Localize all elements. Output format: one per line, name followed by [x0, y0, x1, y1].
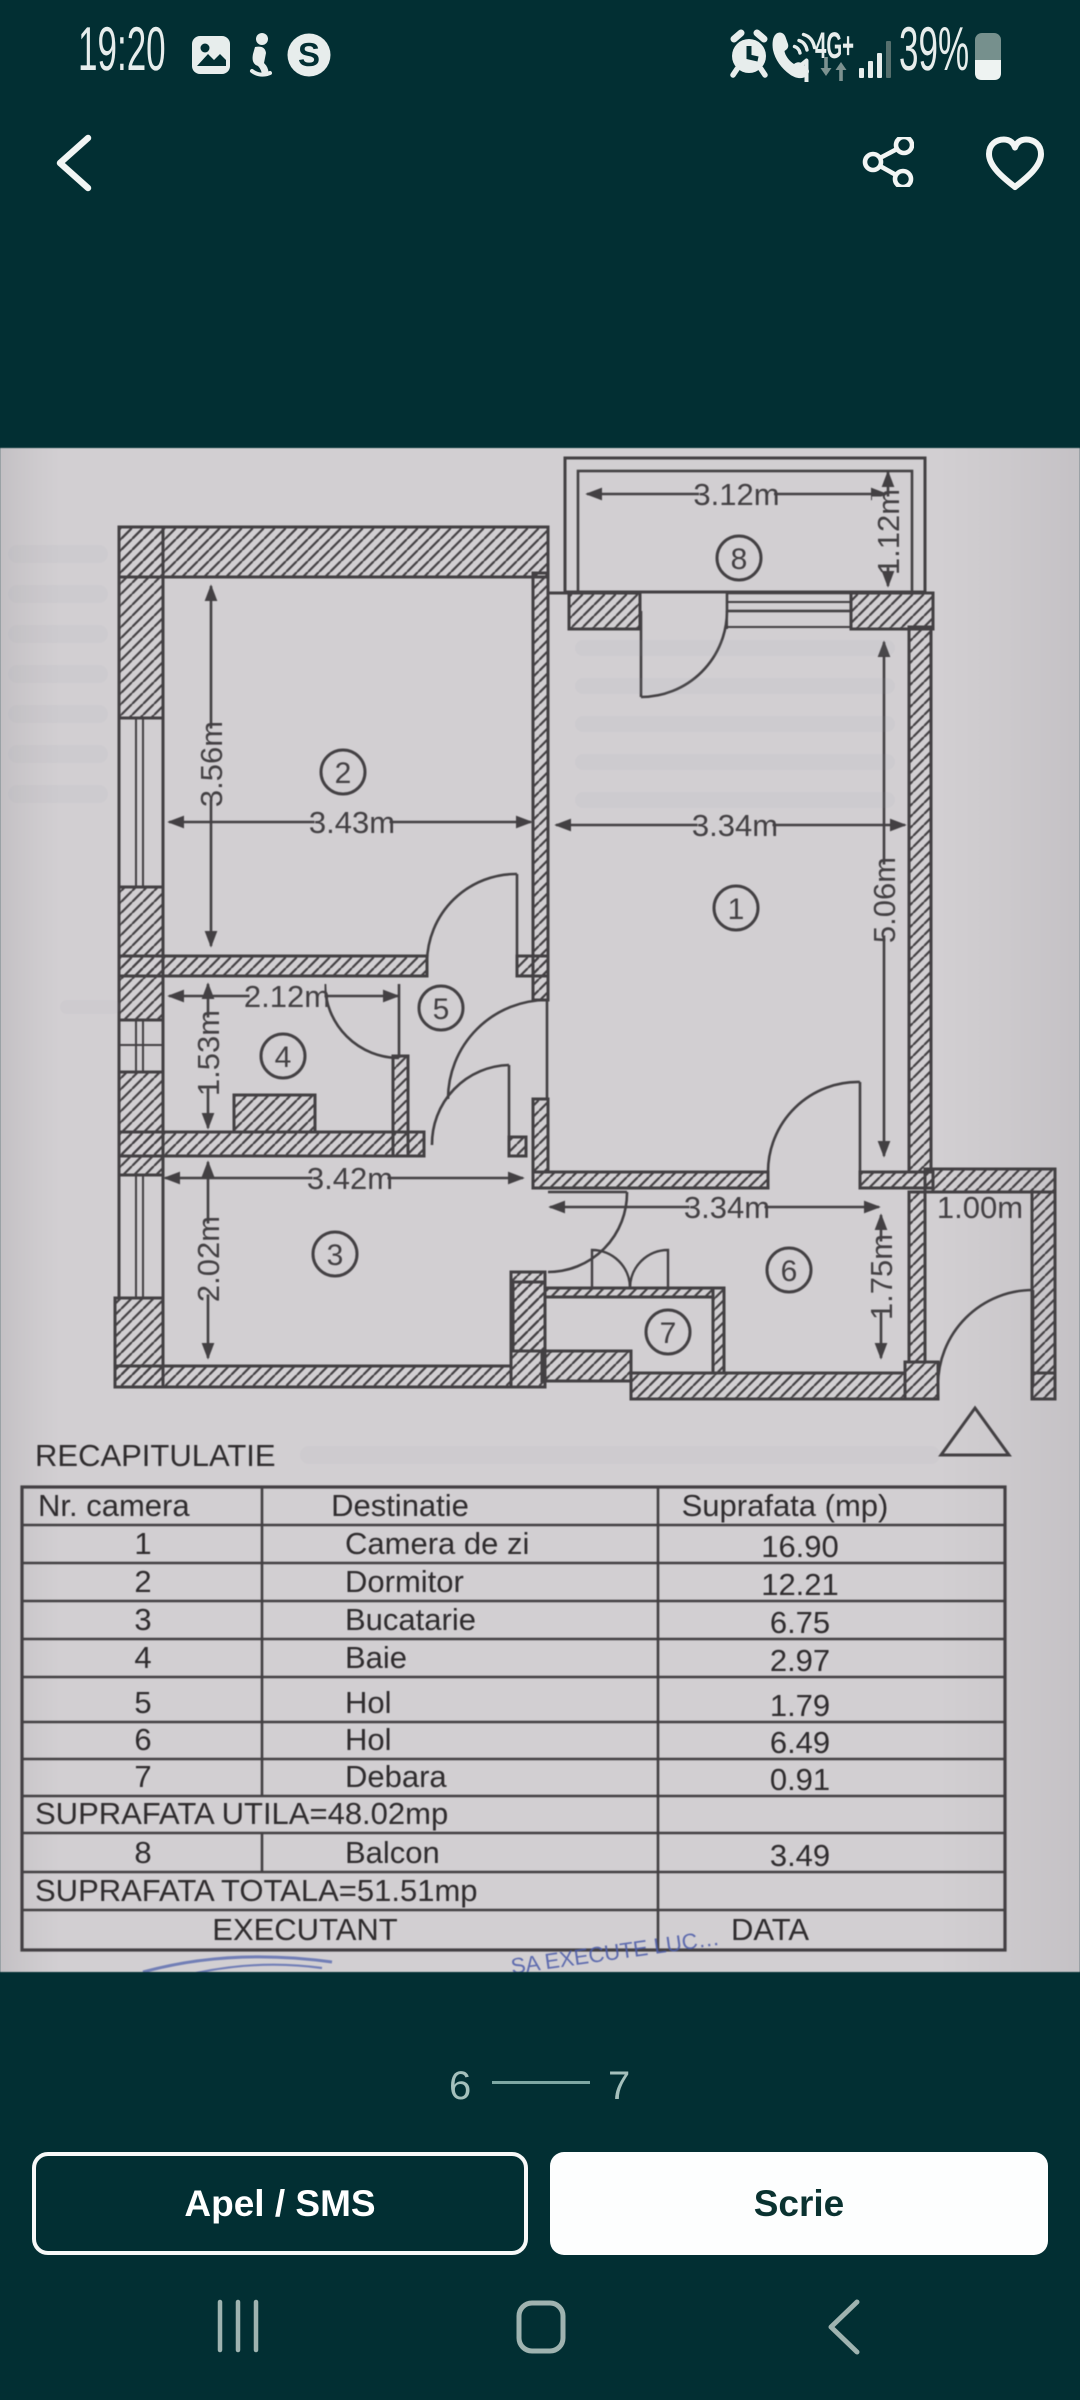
- svg-text:6: 6: [134, 1722, 151, 1757]
- svg-text:2.02m: 2.02m: [191, 1216, 226, 1302]
- svg-text:Suprafata (mp): Suprafata (mp): [682, 1488, 889, 1523]
- svg-text:EXECUTANT: EXECUTANT: [212, 1912, 398, 1947]
- svg-text:2: 2: [335, 757, 352, 790]
- svg-text:SUPRAFATA TOTALA=51.51mp: SUPRAFATA TOTALA=51.51mp: [35, 1873, 478, 1908]
- svg-text:3.12m: 3.12m: [693, 477, 779, 512]
- svg-text:Dormitor: Dormitor: [345, 1564, 464, 1599]
- svg-text:7: 7: [660, 1317, 677, 1350]
- svg-text:39%: 39%: [899, 15, 969, 84]
- svg-text:16.90: 16.90: [761, 1529, 839, 1564]
- svg-text:2.12m: 2.12m: [244, 979, 330, 1014]
- svg-text:Hol: Hol: [345, 1722, 392, 1757]
- svg-text:3.42m: 3.42m: [307, 1161, 393, 1196]
- svg-text:7: 7: [134, 1759, 151, 1794]
- svg-text:Nr. camera: Nr. camera: [38, 1488, 190, 1523]
- svg-text:12.21: 12.21: [761, 1567, 839, 1602]
- svg-text:4: 4: [134, 1640, 151, 1675]
- svg-text:0.91: 0.91: [770, 1762, 830, 1797]
- svg-text:1.75m: 1.75m: [864, 1234, 899, 1320]
- svg-text:3: 3: [327, 1239, 344, 1272]
- svg-text:1: 1: [728, 893, 745, 926]
- svg-text:3.34m: 3.34m: [692, 808, 778, 843]
- svg-text:Camera de zi: Camera de zi: [345, 1526, 529, 1561]
- svg-text:5: 5: [134, 1685, 151, 1720]
- svg-text:6: 6: [781, 1255, 798, 1288]
- svg-text:6.49: 6.49: [770, 1725, 830, 1760]
- svg-text:6.75: 6.75: [770, 1605, 830, 1640]
- svg-text:S: S: [298, 36, 320, 73]
- svg-text:1.00m: 1.00m: [937, 1190, 1023, 1225]
- svg-text:3.43m: 3.43m: [309, 805, 395, 840]
- svg-text:1.53m: 1.53m: [191, 1010, 226, 1096]
- svg-text:19:20: 19:20: [78, 15, 166, 84]
- svg-text:5: 5: [433, 993, 450, 1026]
- svg-text:RECAPITULATIE: RECAPITULATIE: [35, 1438, 276, 1473]
- svg-text:Balcon: Balcon: [345, 1835, 440, 1870]
- svg-text:3: 3: [134, 1602, 151, 1637]
- svg-text:1.79: 1.79: [770, 1688, 830, 1723]
- svg-text:Bucatarie: Bucatarie: [345, 1602, 476, 1637]
- svg-text:4: 4: [275, 1041, 292, 1074]
- svg-text:3.56m: 3.56m: [194, 721, 229, 807]
- svg-text:1.12m: 1.12m: [871, 489, 906, 575]
- svg-text:SUPRAFATA UTILA=48.02mp: SUPRAFATA UTILA=48.02mp: [35, 1796, 448, 1831]
- svg-text:1: 1: [134, 1526, 151, 1561]
- svg-text:DATA: DATA: [731, 1912, 809, 1947]
- svg-text:2.97: 2.97: [770, 1643, 830, 1678]
- svg-text:3.34m: 3.34m: [684, 1190, 770, 1225]
- svg-text:8: 8: [731, 543, 748, 576]
- svg-text:Debara: Debara: [345, 1759, 447, 1794]
- svg-text:5.06m: 5.06m: [867, 857, 902, 943]
- svg-text:8: 8: [134, 1835, 151, 1870]
- svg-text:Destinatie: Destinatie: [331, 1488, 469, 1523]
- svg-text:2: 2: [134, 1564, 151, 1599]
- svg-text:Hol: Hol: [345, 1685, 392, 1720]
- svg-text:Baie: Baie: [345, 1640, 407, 1675]
- svg-text:3.49: 3.49: [770, 1838, 830, 1873]
